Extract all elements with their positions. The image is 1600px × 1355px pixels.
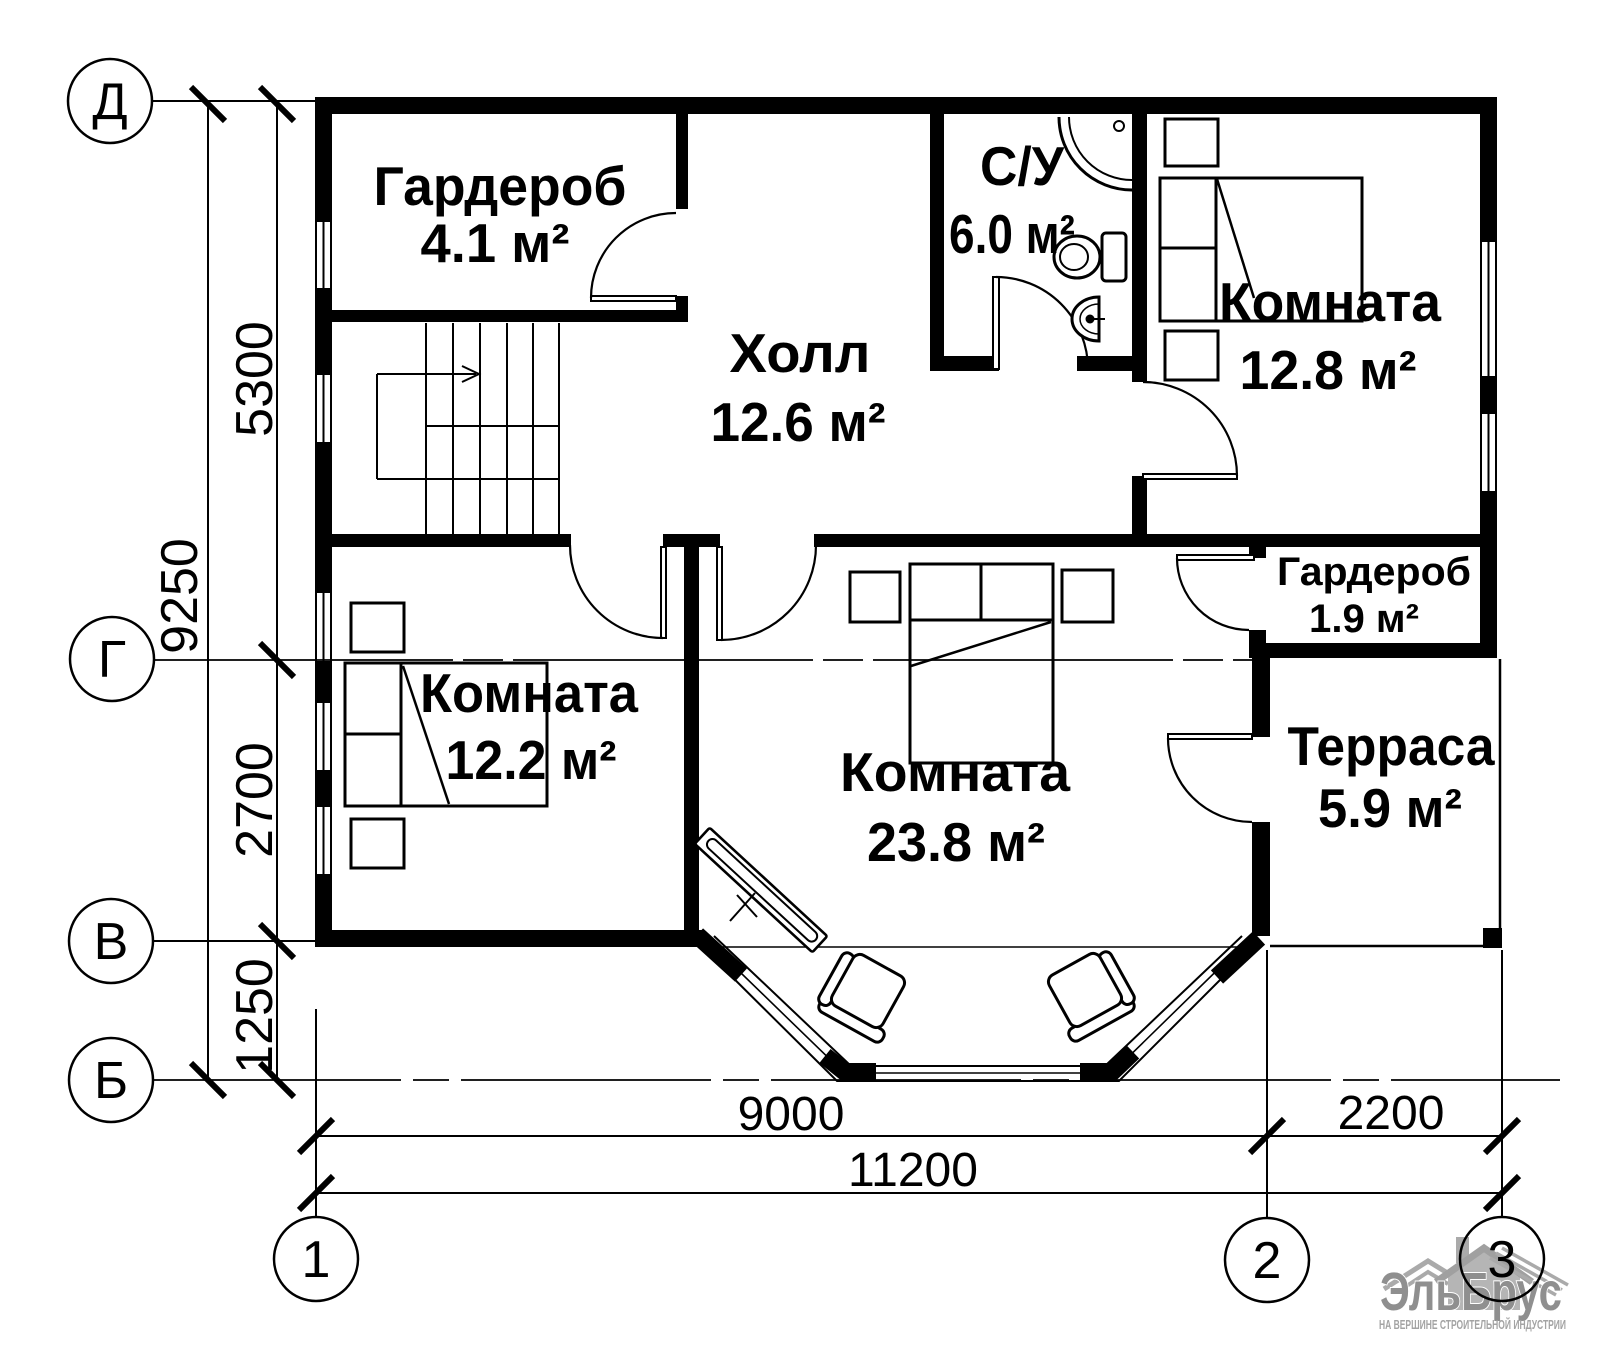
svg-text:2200: 2200: [1338, 1087, 1445, 1140]
svg-text:В: В: [94, 913, 129, 971]
svg-text:12.2 м²: 12.2 м²: [446, 729, 617, 791]
svg-text:Д: Д: [92, 73, 127, 131]
svg-text:ЭльБрус: ЭльБрус: [1380, 1262, 1562, 1322]
svg-text:НА ВЕРШИНЕ СТРОИТЕЛЬНОЙ ИНДУСТ: НА ВЕРШИНЕ СТРОИТЕЛЬНОЙ ИНДУСТРИИ: [1379, 1317, 1566, 1332]
svg-text:Б: Б: [94, 1052, 128, 1110]
svg-text:11200: 11200: [848, 1144, 978, 1197]
svg-text:9000: 9000: [738, 1088, 845, 1141]
svg-text:Холл: Холл: [730, 322, 871, 384]
svg-text:Гардероб: Гардероб: [1277, 550, 1471, 594]
svg-text:6.0 м²: 6.0 м²: [949, 203, 1075, 265]
svg-text:23.8 м²: 23.8 м²: [867, 811, 1045, 873]
svg-text:2700: 2700: [226, 742, 284, 858]
svg-text:12.6 м²: 12.6 м²: [711, 391, 886, 453]
svg-text:2: 2: [1253, 1232, 1282, 1290]
svg-text:С/У: С/У: [980, 135, 1065, 197]
svg-text:Комната: Комната: [420, 662, 638, 724]
svg-text:Г: Г: [98, 631, 126, 689]
svg-text:1250: 1250: [226, 958, 284, 1074]
svg-text:5.9 м²: 5.9 м²: [1318, 777, 1462, 839]
svg-text:Гардероб: Гардероб: [374, 155, 627, 217]
svg-text:Терраса: Терраса: [1288, 715, 1495, 777]
svg-text:9250: 9250: [151, 538, 209, 654]
svg-text:Комната: Комната: [1219, 271, 1441, 333]
svg-text:5300: 5300: [226, 321, 284, 437]
svg-text:3: 3: [1488, 1231, 1517, 1289]
svg-text:1.9 м²: 1.9 м²: [1309, 597, 1419, 641]
svg-text:4.1 м²: 4.1 м²: [421, 212, 570, 274]
svg-text:1: 1: [302, 1231, 331, 1289]
svg-text:12.8 м²: 12.8 м²: [1240, 339, 1417, 401]
svg-text:Комната: Комната: [840, 741, 1070, 803]
